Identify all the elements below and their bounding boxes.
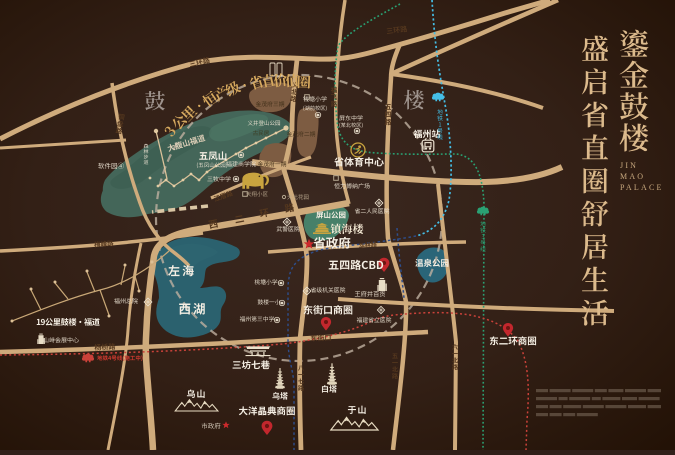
svg-text:MAO: MAO <box>620 172 645 181</box>
svg-text:JIN: JIN <box>620 161 638 170</box>
svg-text:PALACE: PALACE <box>620 183 664 192</box>
